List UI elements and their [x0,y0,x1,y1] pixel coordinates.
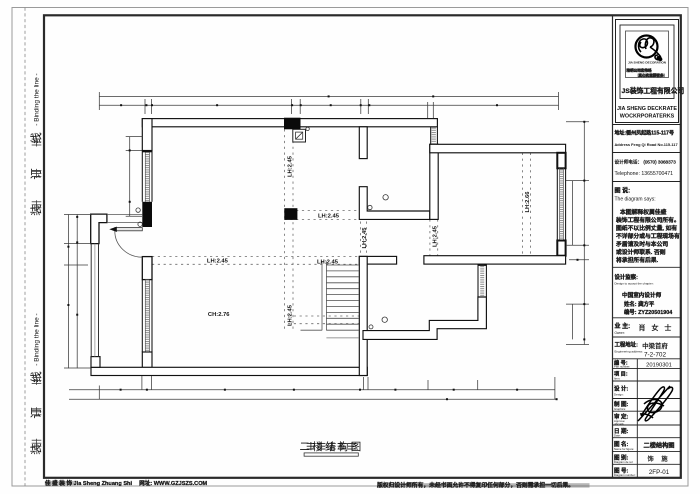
svg-text:中国室内设计师: 中国室内设计师 [622,291,662,299]
svg-text:图纸不以比例丈量, 如有: 图纸不以比例丈量, 如有 [616,224,677,232]
svg-text:7-2-702: 7-2-702 [644,352,666,359]
svg-text:肖 女 士: 肖 女 士 [639,323,674,332]
svg-text:饰 施: 饰 施 [647,455,670,463]
svg-text:LH:2.45: LH:2.45 [317,260,339,266]
svg-text:Graphics:: Graphics: [614,407,626,411]
svg-text:2FP-01: 2FP-01 [649,469,670,476]
svg-text:JIA SHENG DECKRATE: JIA SHENG DECKRATE [617,106,677,112]
svg-text:工程地址:: 工程地址: [615,341,639,349]
svg-text:设 计:: 设 计: [614,385,629,393]
svg-text:图 说:: 图 说: [615,187,631,195]
svg-text:- Binding the line -: - Binding the line - [34,313,41,365]
svg-text:- Binding the line -: - Binding the line - [34,73,41,125]
svg-text:The diagram says:: The diagram says: [615,197,656,203]
svg-text:地址:衢州凤起路115-117号: 地址:衢州凤起路115-117号 [615,130,674,137]
svg-text:Engineering address:: Engineering address: [615,350,644,354]
svg-text:Diagram number:: Diagram number: [614,473,636,477]
svg-text:Design to accept the chapter:: Design to accept the chapter: [615,282,654,286]
svg-text:业 主:: 业 主: [615,322,631,330]
svg-text:LH:2.45: LH:2.45 [362,227,368,249]
svg-text:LH:2.45: LH:2.45 [207,259,229,265]
svg-text:LH:2.45: LH:2.45 [287,304,293,326]
svg-text:Item:: Item: [614,377,620,381]
svg-text:Design:: Design: [614,393,624,397]
svg-text:装饰工程有限公司所有。: 装饰工程有限公司所有。 [615,216,680,224]
svg-text:Name for figure:: Name for figure: [614,447,634,451]
svg-text:Diagram de rel:: Diagram de rel: [614,460,633,464]
svg-text:Part number:: Part number: [614,365,630,369]
svg-text:或设计师联系. 否则: 或设计师联系. 否则 [616,248,666,256]
svg-text:设计监察:: 设计监察: [615,273,639,281]
svg-text:LH:2.66: LH:2.66 [525,191,531,213]
svg-text:Owner:: Owner: [615,331,625,335]
svg-text:JIA SHENG DECORATION: JIA SHENG DECORATION [628,61,667,65]
svg-text:编号: ZYZ20501904: 编号: ZYZ20501904 [624,308,672,316]
svg-text:Date:: Date: [614,434,621,438]
svg-text:将承担所有后果.: 将承担所有后果. [616,256,659,264]
svg-text:版权归设计师所有，未经书面允许不得复印任何部分，否则需承担一: 版权归设计师所有，未经书面允许不得复印任何部分，否则需承担一切后果。 [376,481,574,489]
svg-text:Telephone: 13655700471: Telephone: 13655700471 [615,171,674,177]
svg-text:精明公司宏伟略: 精明公司宏伟略 [626,68,652,73]
svg-text:20190301: 20190301 [646,363,672,369]
svg-text:矛盾请及时与本公司: 矛盾请及时与本公司 [615,240,668,248]
svg-text:JS装饰工程有限公司: JS装饰工程有限公司 [622,86,685,95]
svg-text:二楼结构图: 二楼结构图 [644,442,675,450]
svg-text:真心实意顾客多: 真心实意顾客多 [638,72,664,77]
svg-text:Address Feng Qi Road No.115-11: Address Feng Qi Road No.115-117 [615,142,678,147]
svg-text:中梁首府: 中梁首府 [642,341,668,350]
svg-text:LH:2.45: LH:2.45 [318,213,340,219]
svg-text:佳 盛 装 饰 Jia Sheng Zhuang Shi: 佳 盛 装 饰 Jia Sheng Zhuang Shi 网址: WWW.GZJ… [45,479,208,487]
svg-text:LH:2.45: LH:2.45 [287,155,293,177]
svg-text:WOCKRPORATERKS: WOCKRPORATERKS [620,114,675,120]
svg-text:LH:2.45: LH:2.45 [432,225,438,247]
svg-text:不详部分或与工程现场有: 不详部分或与工程现场有 [616,232,680,240]
svg-text:姓名: 龚方平: 姓名: 龚方平 [624,300,655,308]
svg-text:设计师电话： (0570) 3068373: 设计师电话： (0570) 3068373 [615,159,677,166]
svg-text:本图解释权属佳盛: 本图解释权属佳盛 [620,208,667,216]
svg-text:CH:2.76: CH:2.76 [208,312,230,318]
